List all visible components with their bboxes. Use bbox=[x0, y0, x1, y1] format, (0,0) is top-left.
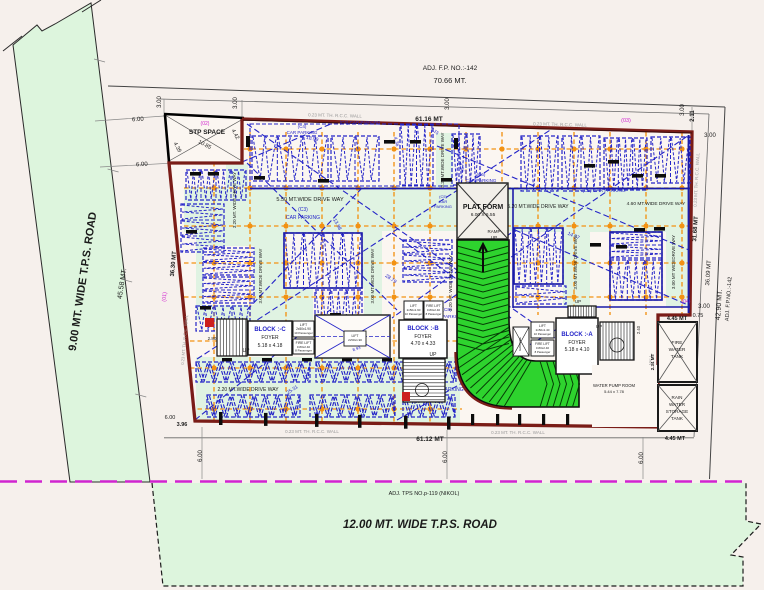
svg-text:(C4): (C4) bbox=[298, 124, 307, 129]
svg-text:CAR PARKING: CAR PARKING bbox=[286, 215, 320, 221]
svg-text:8 Passenger: 8 Passenger bbox=[295, 349, 312, 353]
svg-text:GARBAGE: GARBAGE bbox=[518, 337, 522, 351]
svg-text:UP: UP bbox=[575, 299, 581, 304]
svg-text:6.00: 6.00 bbox=[132, 117, 145, 124]
svg-text:3.00: 3.00 bbox=[680, 104, 686, 116]
svg-text:CAR PARKING: CAR PARKING bbox=[287, 130, 318, 135]
svg-text:5.50 MT.WIDE DRIVE WAY: 5.50 MT.WIDE DRIVE WAY bbox=[276, 197, 344, 203]
svg-text:WATER: WATER bbox=[669, 402, 686, 407]
svg-text:BLOCK :-B: BLOCK :-B bbox=[407, 326, 439, 332]
svg-text:5.44 x 7.78: 5.44 x 7.78 bbox=[604, 389, 625, 394]
svg-text:3.00 MT.WIDE DRIVE WAY: 3.00 MT.WIDE DRIVE WAY bbox=[258, 248, 263, 303]
svg-text:3.00 MT.WIDE DRIVE WAY: 3.00 MT.WIDE DRIVE WAY bbox=[370, 248, 375, 303]
svg-text:PARKING: PARKING bbox=[434, 204, 452, 209]
svg-text:UP: UP bbox=[430, 352, 438, 358]
svg-text:4.70 x 4.33: 4.70 x 4.33 bbox=[411, 341, 436, 347]
svg-text:FIRE: FIRE bbox=[672, 340, 683, 346]
svg-text:0.23 MT. TH. R.C.C. WALL: 0.23 MT. TH. R.C.C. WALL bbox=[285, 429, 339, 434]
svg-text:(03): (03) bbox=[621, 118, 631, 124]
svg-text:WATER: WATER bbox=[669, 347, 686, 353]
svg-text:(C5) CAR PARKING: (C5) CAR PARKING bbox=[582, 188, 626, 194]
svg-text:5.20 MT.WIDE DRIVE WAY: 5.20 MT.WIDE DRIVE WAY bbox=[507, 204, 569, 210]
svg-text:3.00: 3.00 bbox=[233, 97, 239, 109]
svg-text:(02): (02) bbox=[201, 121, 210, 127]
svg-text:0.75: 0.75 bbox=[693, 313, 704, 319]
svg-text:BLOCK :-A: BLOCK :-A bbox=[561, 332, 593, 338]
svg-text:5.18 x 4.18: 5.18 x 4.18 bbox=[258, 343, 283, 349]
svg-text:(C8): (C8) bbox=[442, 307, 452, 313]
svg-text:3.20 MT. WIDE DRIVE WAY: 3.20 MT. WIDE DRIVE WAY bbox=[232, 172, 237, 228]
svg-text:2x50x1.90: 2x50x1.90 bbox=[348, 338, 362, 342]
svg-text:6.00: 6.00 bbox=[165, 415, 176, 421]
svg-text:61.12 MT: 61.12 MT bbox=[416, 436, 443, 443]
svg-text:12.00 MT. WIDE T.P.S. ROAD: 12.00 MT. WIDE T.P.S. ROAD bbox=[343, 519, 497, 531]
svg-text:FOYER: FOYER bbox=[414, 334, 432, 340]
svg-text:RAMP: RAMP bbox=[487, 229, 500, 234]
svg-text:2.11: 2.11 bbox=[690, 110, 696, 122]
svg-text:2.80: 2.80 bbox=[208, 336, 217, 341]
svg-text:0.23 MT. TH. R.C.C. WALL: 0.23 MT. TH. R.C.C. WALL bbox=[491, 430, 545, 435]
svg-text:3.96: 3.96 bbox=[177, 422, 188, 428]
svg-text:4.45 MT: 4.45 MT bbox=[665, 436, 686, 442]
svg-text:UP: UP bbox=[596, 324, 602, 329]
svg-text:6.00: 6.00 bbox=[639, 452, 645, 464]
svg-text:(C4) CAR PARKING: (C4) CAR PARKING bbox=[340, 120, 381, 125]
svg-text:3.20 MT.WIDE DRIVE WAY: 3.20 MT.WIDE DRIVE WAY bbox=[440, 132, 445, 187]
svg-text:(C6): (C6) bbox=[477, 172, 486, 177]
svg-text:10 Passenger: 10 Passenger bbox=[534, 332, 551, 336]
svg-text:70.66 MT.: 70.66 MT. bbox=[434, 76, 467, 85]
svg-text:STP SPACE: STP SPACE bbox=[189, 129, 226, 136]
svg-text:3.00: 3.00 bbox=[704, 133, 716, 139]
svg-text:4.45 MT: 4.45 MT bbox=[667, 316, 688, 322]
svg-text:FOYER: FOYER bbox=[568, 340, 586, 346]
svg-text:ADJ. TPS NO.p-119 (NIKOL): ADJ. TPS NO.p-119 (NIKOL) bbox=[389, 491, 460, 497]
svg-text:10 Passenger: 10 Passenger bbox=[294, 331, 313, 335]
svg-text:3.00 MT.WIDE DRIVE WAY: 3.00 MT.WIDE DRIVE WAY bbox=[573, 234, 578, 289]
svg-text:PLAT FORM: PLAT FORM bbox=[463, 204, 503, 211]
svg-text:3.00: 3.00 bbox=[157, 96, 163, 108]
svg-text:8 Passenger: 8 Passenger bbox=[426, 312, 442, 316]
svg-text:FOYER: FOYER bbox=[261, 335, 279, 341]
svg-text:2.34 MT: 2.34 MT bbox=[650, 354, 655, 371]
svg-text:TANK: TANK bbox=[671, 354, 684, 360]
svg-text:2.20 MT.WIDE DRIVE WAY: 2.20 MT.WIDE DRIVE WAY bbox=[217, 387, 279, 393]
svg-text:10 Passenger: 10 Passenger bbox=[405, 312, 422, 316]
svg-text:ADJ. F.P. NO.:-142: ADJ. F.P. NO.:-142 bbox=[423, 65, 478, 72]
svg-text:CAR PARKING: CAR PARKING bbox=[466, 178, 497, 183]
svg-text:8 Passenger: 8 Passenger bbox=[535, 350, 551, 354]
svg-text:4.60 MT.WIDE DRIVE WAY: 4.60 MT.WIDE DRIVE WAY bbox=[627, 201, 686, 207]
svg-text:6.00: 6.00 bbox=[198, 450, 204, 462]
svg-text:3.20 MT. WIDE DRIVE WAY: 3.20 MT. WIDE DRIVE WAY bbox=[448, 255, 453, 311]
svg-text:UP: UP bbox=[243, 348, 251, 354]
svg-text:3.00: 3.00 bbox=[445, 98, 451, 110]
svg-text:(01): (01) bbox=[162, 292, 169, 302]
svg-text:WATER PUMP ROOM: WATER PUMP ROOM bbox=[593, 383, 636, 388]
svg-text:6.00: 6.00 bbox=[136, 162, 149, 169]
svg-text:5.18 x 4.10: 5.18 x 4.10 bbox=[565, 347, 590, 353]
svg-text:TANK: TANK bbox=[671, 416, 684, 421]
svg-text:3.00 MT WIDEDRIVE WAY: 3.00 MT WIDEDRIVE WAY bbox=[671, 235, 676, 289]
svg-text:2.40: 2.40 bbox=[636, 325, 641, 334]
svg-text:61.16 MT: 61.16 MT bbox=[415, 116, 442, 123]
svg-text:RAIN: RAIN bbox=[672, 395, 683, 400]
svg-text:3.00: 3.00 bbox=[698, 304, 710, 310]
svg-text:6.00: 6.00 bbox=[443, 451, 449, 463]
svg-text:BLOCK :-C: BLOCK :-C bbox=[254, 327, 286, 333]
svg-text:6.00 X 6.55: 6.00 X 6.55 bbox=[471, 212, 496, 218]
svg-text:STORAGE: STORAGE bbox=[666, 409, 688, 414]
svg-text:(C3): (C3) bbox=[298, 207, 308, 213]
